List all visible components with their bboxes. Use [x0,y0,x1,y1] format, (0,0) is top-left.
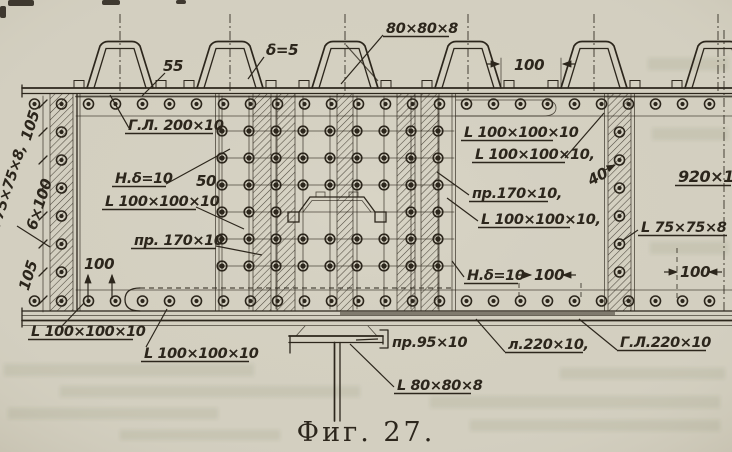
label-l100-r3: L 100×100×10, [481,212,601,228]
label-pr170-right: пр.170×10, [472,186,562,202]
rivet-center [707,299,711,303]
rivet-center [300,182,305,187]
rivet-center [32,299,36,303]
rivet-center [518,102,522,106]
hatched-strip [337,94,353,311]
rivet-center [273,263,278,268]
deck-clip [184,81,194,89]
rivet-center [59,299,63,303]
rivet-center [408,236,413,241]
dim-50: 50 [196,172,216,190]
rivet-center [354,236,359,241]
hatched-strip [253,94,271,311]
label-l100-b2: L 100×100×10 [144,346,259,362]
rivet-center [59,214,63,218]
rivet-center [329,299,333,303]
rivet-center [617,214,621,218]
label-l100-r2: L 100×100×10, [475,147,595,163]
rivet-center [246,209,251,214]
rivet-center [653,299,657,303]
deck-clip [630,81,640,89]
edge-smudge [8,0,34,6]
label-l220: л.220×10, [508,337,589,353]
rivet-center [140,299,144,303]
rivet-center [653,102,657,106]
dim-100-right2: 100 [680,263,710,281]
label-80x80x8: 80×80×8 [386,21,458,37]
label-l100-r1: L 100×100×10 [464,125,579,141]
rivet-center [219,263,224,268]
rivet-center [464,299,468,303]
rivet-center [59,186,63,190]
rivet-center [408,182,413,187]
edge-smudge [102,0,120,5]
label-pr95: пр.95×10 [392,335,468,351]
rivet-center [140,102,144,106]
rivet-center [354,263,359,268]
rivet-center [219,182,224,187]
rivet-center [435,263,440,268]
rivet-center [518,299,522,303]
label-l75-right: L 75×75×8 [641,220,727,236]
rivet-center [327,236,332,241]
rivet-center [273,182,278,187]
label-gl200x10: Г.Л. 200×10 [128,118,224,134]
label-pr170-left: пр. 170×10 [134,233,224,249]
rivet-center [435,236,440,241]
rivet-center [194,299,198,303]
rivet-center [327,155,332,160]
rivet-center [408,128,413,133]
rivet-center [273,155,278,160]
rivet-center [273,236,278,241]
rivet-center [572,299,576,303]
rivet-center [408,263,413,268]
rivet-center [545,102,549,106]
rivet-center [194,102,198,106]
rivet-center [300,128,305,133]
rivet-center [167,299,171,303]
rivet-center [707,102,711,106]
label-gl220: Г.Л.220×10 [620,335,711,351]
rivet-center [626,102,630,106]
rivet-center [356,102,360,106]
rivet-center [383,102,387,106]
rivet-center [617,270,621,274]
rivet-center [464,102,468,106]
rivet-center [275,299,279,303]
rivet-center [381,128,386,133]
rivet-center [327,263,332,268]
rivet-center [617,130,621,134]
rivet-center [383,299,387,303]
rivet-center [329,102,333,106]
rivet-center [680,299,684,303]
rivet-center [381,236,386,241]
rivet-center [437,299,441,303]
edge-smudge [176,0,186,4]
dim-100-right1: 100 [534,266,564,284]
rivet-center [221,299,225,303]
rivet-center [59,102,63,106]
rivet-center [408,209,413,214]
rivet-center [302,102,306,106]
rivet-center [246,182,251,187]
rivet-center [437,102,441,106]
label-l100-left: L 100×100×10 [105,194,220,210]
figure-caption: Фиг. 27. [297,417,436,448]
rivet-center [302,299,306,303]
rivet-center [617,186,621,190]
rivet-center [246,263,251,268]
rivet-center [435,155,440,160]
rivet-center [491,299,495,303]
rivet-center [680,102,684,106]
dim-100-bottom-left: 100 [84,255,114,273]
rivet-center [59,242,63,246]
rivet-center [113,299,117,303]
deck-clip [156,81,166,89]
deck-clip [74,81,84,89]
rivet-center [86,299,90,303]
rivet-center [435,128,440,133]
scanned-page: 80×80×8 δ=5 55 100 Г.Л. 200×10 Н.δ=10 50… [0,0,732,452]
rivet-center [327,182,332,187]
rivet-center [300,263,305,268]
rivet-center [32,102,36,106]
deck-clip [381,81,391,89]
label-l80x80x8: L 80×80×8 [397,378,483,394]
rivet-center [545,299,549,303]
rivet-center [599,102,603,106]
rivet-center [59,130,63,134]
rivet-center [599,299,603,303]
deck-clip [548,81,558,89]
edge-smudge [0,6,6,18]
rivet-center [491,102,495,106]
rivet-center [221,102,225,106]
rivet-center [626,299,630,303]
rivet-center [381,263,386,268]
rivet-center [435,182,440,187]
deck-clip [672,81,682,89]
label-920x10: 920×10 [678,167,732,186]
rivet-center [408,155,413,160]
deck-clip [422,81,432,89]
rivet-center [273,209,278,214]
rivet-center [219,155,224,160]
rivet-center [167,102,171,106]
riveted-girder-splice-drawing: 80×80×8 δ=5 55 100 Г.Л. 200×10 Н.δ=10 50… [0,0,732,452]
dim-55: 55 [163,57,183,75]
rivet-center [572,102,576,106]
rivet-center [617,242,621,246]
rivet-center [617,158,621,162]
dim-100-top: 100 [514,56,544,74]
rivet-center [381,182,386,187]
label-l100-b1: L 100×100×10 [31,324,146,340]
rivet-center [327,128,332,133]
rivet-center [410,299,414,303]
rivet-center [381,155,386,160]
deck-clip [266,81,276,89]
rivet-center [59,270,63,274]
rivet-center [246,155,251,160]
deck-clip [299,81,309,89]
rivet-center [354,182,359,187]
rivet-center [246,128,251,133]
rivet-center [275,102,279,106]
rivet-center [219,209,224,214]
label-nd10-left: Н.δ=10 [115,171,173,187]
rivet-center [354,128,359,133]
label-nd10-right: Н.δ=10 [467,268,525,284]
rivet-center [248,102,252,106]
rivet-center [356,299,360,303]
rivet-center [86,102,90,106]
rivet-center [248,299,252,303]
label-delta5: δ=5 [266,41,298,59]
rivet-center [435,209,440,214]
rivet-center [300,155,305,160]
rivet-center [59,158,63,162]
rivet-center [273,128,278,133]
deck-clip [504,81,514,89]
rivet-center [354,155,359,160]
hatched-strip [277,94,295,311]
rivet-center [300,236,305,241]
rivet-center [410,102,414,106]
rivet-center [246,236,251,241]
